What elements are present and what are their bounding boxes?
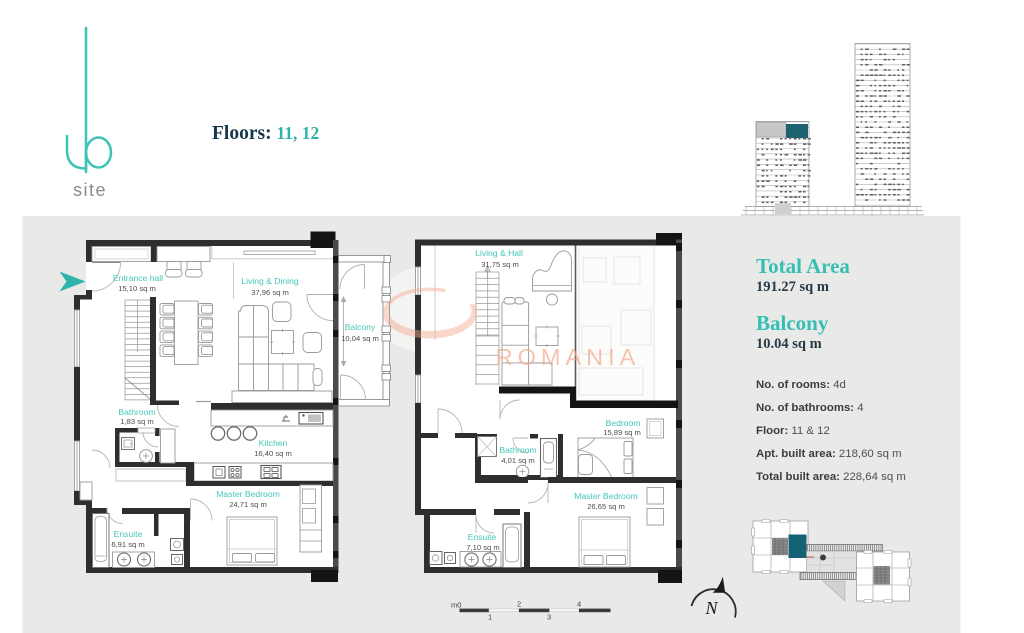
- svg-text:Kitchen: Kitchen: [259, 438, 288, 448]
- svg-text:26,65 sq m: 26,65 sq m: [587, 502, 625, 511]
- svg-text:Master Bedroom: Master Bedroom: [574, 491, 638, 501]
- svg-text:m0: m0: [451, 601, 461, 610]
- svg-text:Living & Dining: Living & Dining: [241, 276, 299, 286]
- svg-text:Balcony: Balcony: [756, 311, 829, 335]
- svg-text:3: 3: [547, 613, 551, 622]
- svg-text:No. of rooms: 4d: No. of rooms: 4d: [756, 379, 846, 391]
- svg-text:Floors: 11, 12: Floors: 11, 12: [212, 123, 319, 144]
- svg-text:No. of bathrooms: 4: No. of bathrooms: 4: [756, 402, 864, 414]
- svg-text:Ensuite: Ensuite: [114, 529, 143, 539]
- svg-text:Floor: 11 & 12: Floor: 11 & 12: [756, 425, 830, 437]
- svg-text:Balcony: Balcony: [345, 322, 376, 332]
- svg-text:37,96 sq m: 37,96 sq m: [251, 288, 289, 297]
- svg-text:24,71 sq m: 24,71 sq m: [229, 500, 267, 509]
- svg-text:191.27 sq m: 191.27 sq m: [756, 279, 829, 295]
- svg-text:Master Bedroom: Master Bedroom: [216, 489, 280, 499]
- svg-text:1,83 sq m: 1,83 sq m: [120, 417, 153, 426]
- svg-text:Ensuite: Ensuite: [468, 532, 497, 542]
- svg-text:Entrance hall: Entrance hall: [113, 273, 163, 283]
- svg-text:16,40 sq m: 16,40 sq m: [254, 449, 292, 458]
- svg-text:31,75 sq m: 31,75 sq m: [481, 260, 519, 269]
- svg-text:Total Area: Total Area: [756, 254, 850, 278]
- svg-text:15,89 sq m: 15,89 sq m: [603, 428, 641, 437]
- svg-text:4: 4: [577, 600, 581, 609]
- svg-text:6,91 sq m: 6,91 sq m: [111, 540, 144, 549]
- svg-text:ROMANIA: ROMANIA: [496, 344, 641, 370]
- svg-text:Apt. built area: 218,60 sq m: Apt. built area: 218,60 sq m: [756, 448, 902, 460]
- svg-text:Bathroom: Bathroom: [118, 407, 155, 417]
- svg-text:2: 2: [517, 600, 521, 609]
- svg-text:7,10 sq m: 7,10 sq m: [466, 543, 499, 552]
- svg-text:4,01 sq m: 4,01 sq m: [501, 456, 534, 465]
- svg-text:15,10 sq m: 15,10 sq m: [118, 284, 156, 293]
- svg-text:Total built area: 228,64 sq m: Total built area: 228,64 sq m: [756, 471, 906, 483]
- svg-text:10.04 sq m: 10.04 sq m: [756, 336, 822, 352]
- svg-text:10,04 sq m: 10,04 sq m: [341, 334, 379, 343]
- svg-text:Bathroom: Bathroom: [499, 445, 536, 455]
- svg-text:N: N: [705, 598, 719, 618]
- svg-text:site: site: [73, 180, 107, 200]
- svg-text:Bedroom: Bedroom: [606, 418, 641, 428]
- svg-text:Living & Hall: Living & Hall: [475, 248, 523, 258]
- svg-text:1: 1: [488, 613, 492, 622]
